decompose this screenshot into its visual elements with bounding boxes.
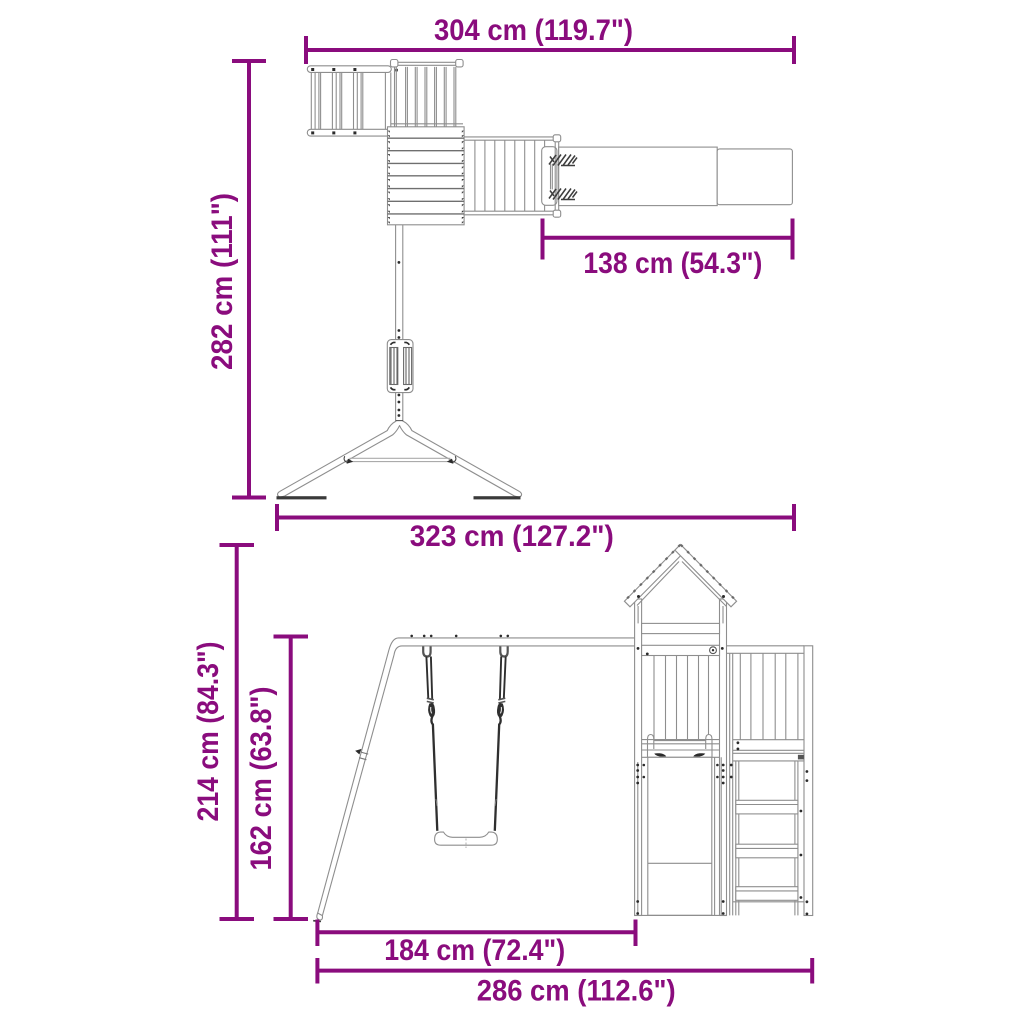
svg-text:214 cm (84.3"): 214 cm (84.3") — [192, 642, 225, 822]
svg-text:162 cm (63.8"): 162 cm (63.8") — [245, 687, 278, 871]
svg-text:184 cm (72.4"): 184 cm (72.4") — [384, 934, 565, 967]
svg-text:286 cm (112.6"): 286 cm (112.6") — [477, 975, 676, 1008]
svg-text:323 cm (127.2"): 323 cm (127.2") — [410, 520, 614, 553]
svg-text:138 cm (54.3"): 138 cm (54.3") — [583, 247, 762, 280]
svg-text:282 cm (111"): 282 cm (111") — [206, 193, 239, 370]
svg-text:304 cm (119.7"): 304 cm (119.7") — [434, 14, 633, 47]
